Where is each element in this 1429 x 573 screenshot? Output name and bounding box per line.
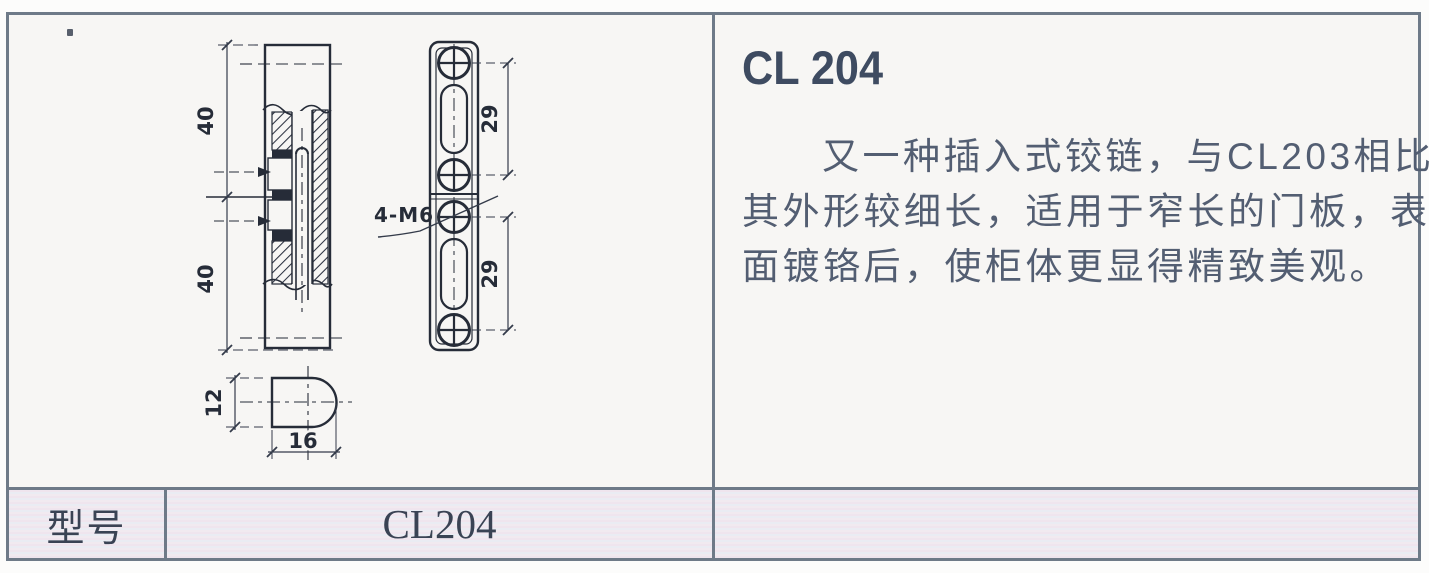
description-line: 其外形较细长，适用于窄长的门板，表 [742, 184, 1400, 239]
technical-drawing: 40 40 12 [9, 15, 712, 487]
screw-hole-icon [439, 48, 470, 79]
drawing-panel: 40 40 12 [9, 15, 712, 487]
catalog-page: 40 40 12 [0, 0, 1429, 573]
dim-end-height-label: 12 [202, 388, 226, 417]
screw-hole-icon [439, 315, 470, 346]
spec-table: 型号 CL204 [9, 490, 712, 558]
description-line: 又一种插入式铰链，与CL203相比， [742, 129, 1400, 184]
model-value-cell: CL204 [167, 490, 712, 558]
spec-table-empty-cell [712, 490, 1418, 558]
catalog-frame: 40 40 12 [6, 12, 1421, 561]
dim-side-lower-label: 40 [194, 264, 218, 293]
dim-side-upper-label: 40 [194, 106, 218, 135]
product-title: CL 204 [742, 40, 1347, 95]
description-panel: CL 204 又一种插入式铰链，与CL203相比， 其外形较细长，适用于窄长的门… [715, 15, 1418, 487]
dim-end-width-label: 16 [288, 429, 317, 453]
front-view-dimensions: 29 29 4-M6 [374, 58, 516, 335]
screw-hole-icon [439, 160, 470, 191]
screw-hole-icon [439, 202, 470, 233]
description-line: 面镀铬后，使柜体更显得精致美观。 [742, 239, 1400, 294]
panel-divider [712, 15, 715, 558]
front-plate-view [430, 42, 478, 350]
dim-plate-upper-label: 29 [478, 104, 502, 133]
model-label-cell: 型号 [9, 490, 167, 558]
product-description: 又一种插入式铰链，与CL203相比， 其外形较细长，适用于窄长的门板，表 面镀铬… [742, 129, 1400, 294]
dim-plate-lower-label: 29 [478, 259, 502, 288]
thread-callout-label: 4-M6 [374, 203, 434, 227]
